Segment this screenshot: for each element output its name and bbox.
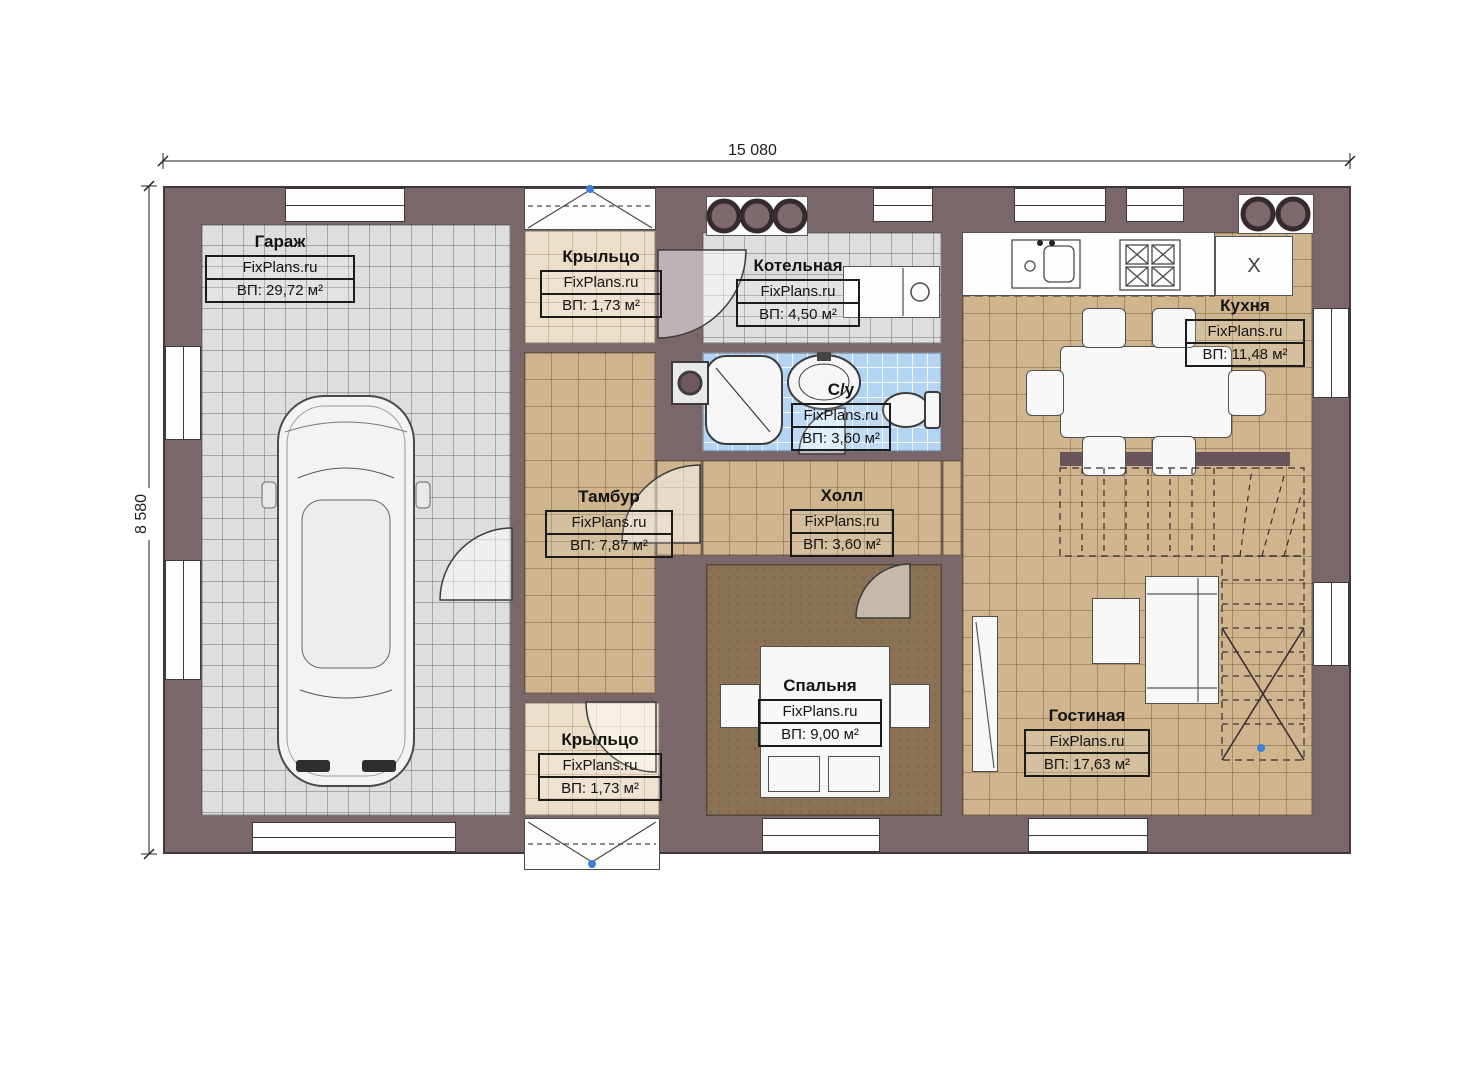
window-living-right bbox=[1313, 582, 1349, 666]
room-label-box: FixPlans.ru ВП: 1,73 м² bbox=[540, 270, 662, 318]
room-label-boiler: Котельная FixPlans.ru ВП: 4,50 м² bbox=[736, 256, 860, 327]
garage-gate bbox=[252, 822, 456, 852]
room-title: Гараж bbox=[205, 232, 355, 252]
room-label-garage: Гараж FixPlans.ru ВП: 29,72 м² bbox=[205, 232, 355, 303]
room-area-text: ВП: 17,63 м² bbox=[1026, 754, 1148, 775]
room-label-porch-top: Крыльцо FixPlans.ru ВП: 1,73 м² bbox=[540, 247, 662, 318]
room-label-hall: Холл FixPlans.ru ВП: 3,60 м² bbox=[790, 486, 894, 557]
room-area-text: ВП: 7,87 м² bbox=[547, 535, 671, 556]
dining-chair bbox=[1152, 436, 1196, 476]
window-kitchen-top-2 bbox=[1126, 188, 1184, 222]
window-boiler-top bbox=[873, 188, 933, 222]
garage-floor bbox=[201, 224, 511, 816]
window-kitchen-right bbox=[1313, 308, 1349, 398]
room-title: Спальня bbox=[758, 676, 882, 696]
room-area-text: ВП: 4,50 м² bbox=[738, 304, 858, 325]
room-title: Тамбур bbox=[545, 487, 673, 507]
window-living-bottom bbox=[1028, 818, 1148, 852]
boiler-vents-box bbox=[706, 196, 808, 236]
room-label-bathroom: С/у FixPlans.ru ВП: 3,60 м² bbox=[791, 380, 891, 451]
room-label-box: FixPlans.ru ВП: 17,63 м² bbox=[1024, 729, 1150, 777]
window-kitchen-top-1 bbox=[1014, 188, 1106, 222]
room-area-text: ВП: 9,00 м² bbox=[760, 724, 880, 745]
watermark-text: FixPlans.ru bbox=[547, 512, 671, 535]
room-title: Крыльцо bbox=[538, 730, 662, 750]
nightstand bbox=[890, 684, 930, 728]
room-label-box: FixPlans.ru ВП: 3,60 м² bbox=[790, 509, 894, 557]
fridge-label: X bbox=[1247, 255, 1260, 278]
nightstand bbox=[720, 684, 760, 728]
window-garage-top bbox=[285, 188, 405, 222]
floor-plan-canvas: 15 080 8 580 X bbox=[0, 0, 1473, 1080]
room-title: Кухня bbox=[1185, 296, 1305, 316]
dining-chair bbox=[1082, 436, 1126, 476]
hall-living-passage bbox=[942, 460, 962, 556]
room-label-box: FixPlans.ru ВП: 29,72 м² bbox=[205, 255, 355, 303]
room-label-box: FixPlans.ru ВП: 7,87 м² bbox=[545, 510, 673, 558]
watermark-text: FixPlans.ru bbox=[207, 257, 353, 280]
sofa bbox=[1145, 576, 1219, 704]
watermark-text: FixPlans.ru bbox=[542, 272, 660, 295]
watermark-text: FixPlans.ru bbox=[1187, 321, 1303, 344]
room-title: С/у bbox=[791, 380, 891, 400]
watermark-text: FixPlans.ru bbox=[1026, 731, 1148, 754]
fridge: X bbox=[1215, 236, 1293, 296]
room-label-porch-bottom: Крыльцо FixPlans.ru ВП: 1,73 м² bbox=[538, 730, 662, 801]
room-area-text: ВП: 11,48 м² bbox=[1187, 344, 1303, 365]
watermark-text: FixPlans.ru bbox=[738, 281, 858, 304]
dining-chair bbox=[1026, 370, 1064, 416]
window-garage-left-2 bbox=[165, 560, 201, 680]
entry-steps-top bbox=[524, 188, 656, 230]
room-label-kitchen: Кухня FixPlans.ru ВП: 11,48 м² bbox=[1185, 296, 1305, 367]
room-label-vestibule: Тамбур FixPlans.ru ВП: 7,87 м² bbox=[545, 487, 673, 558]
room-label-bedroom: Спальня FixPlans.ru ВП: 9,00 м² bbox=[758, 676, 882, 747]
bed-pillow bbox=[828, 756, 880, 792]
room-title: Котельная bbox=[736, 256, 860, 276]
room-label-living: Гостиная FixPlans.ru ВП: 17,63 м² bbox=[1024, 706, 1150, 777]
room-area-text: ВП: 1,73 м² bbox=[542, 295, 660, 316]
bed-pillow bbox=[768, 756, 820, 792]
room-title: Холл bbox=[790, 486, 894, 506]
dining-chair bbox=[1082, 308, 1126, 348]
window-garage-left-1 bbox=[165, 346, 201, 440]
room-title: Гостиная bbox=[1024, 706, 1150, 726]
coffee-table bbox=[1092, 598, 1140, 664]
watermark-text: FixPlans.ru bbox=[760, 701, 880, 724]
window-bedroom-bottom bbox=[762, 818, 880, 852]
room-area-text: ВП: 3,60 м² bbox=[792, 534, 892, 555]
wardrobe bbox=[972, 616, 998, 772]
room-label-box: FixPlans.ru ВП: 9,00 м² bbox=[758, 699, 882, 747]
dimension-height-label: 8 580 bbox=[133, 488, 151, 540]
kitchen-counter bbox=[962, 232, 1215, 296]
watermark-text: FixPlans.ru bbox=[793, 405, 889, 428]
room-title: Крыльцо bbox=[540, 247, 662, 267]
entry-steps-bottom bbox=[524, 818, 660, 870]
watermark-text: FixPlans.ru bbox=[792, 511, 892, 534]
room-label-box: FixPlans.ru ВП: 11,48 м² bbox=[1185, 319, 1305, 367]
room-label-box: FixPlans.ru ВП: 4,50 м² bbox=[736, 279, 860, 327]
kitchen-vents-box bbox=[1238, 194, 1314, 234]
room-label-box: FixPlans.ru ВП: 3,60 м² bbox=[791, 403, 891, 451]
room-label-box: FixPlans.ru ВП: 1,73 м² bbox=[538, 753, 662, 801]
dimension-width-label: 15 080 bbox=[722, 142, 783, 160]
room-area-text: ВП: 1,73 м² bbox=[540, 778, 660, 799]
room-area-text: ВП: 3,60 м² bbox=[793, 428, 889, 449]
dining-chair bbox=[1228, 370, 1266, 416]
room-area-text: ВП: 29,72 м² bbox=[207, 280, 353, 301]
watermark-text: FixPlans.ru bbox=[540, 755, 660, 778]
